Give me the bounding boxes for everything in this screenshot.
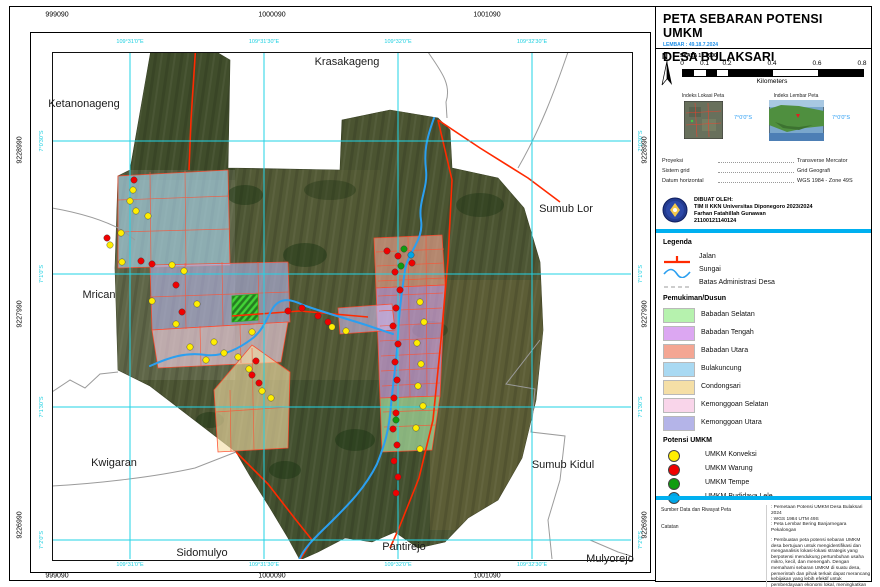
projection-leader: [718, 167, 794, 173]
dusun-color-swatch: [663, 326, 695, 341]
credits-author: Farhan Fatahillah Gunawan: [694, 211, 766, 217]
inset-location-map: [684, 101, 723, 139]
legend-dusun-row: Kemonggoan Utara: [663, 415, 863, 433]
map-inner-neatline: [52, 52, 633, 561]
scale-block: N SKALA 1 : 5000 00.10.20.40.60.8 Kilome…: [656, 49, 871, 89]
source-value: : Pemetaan Potensi UMKM Desa Bulaksari 2…: [771, 505, 871, 534]
projection-row: Sistem gridGrid Geografi: [662, 167, 865, 174]
scale-segment: [818, 70, 863, 76]
projection-row: ProyeksiTransverse Mercator: [662, 157, 865, 164]
scale-segment: [706, 70, 717, 76]
projection-leader: [718, 157, 794, 163]
inset-sheet-map: [769, 100, 824, 141]
umkm-dot-icon: [668, 450, 680, 462]
dusun-color-swatch: [663, 344, 695, 359]
scale-unit: Kilometers: [682, 78, 862, 85]
projection-leader: [718, 177, 794, 183]
dusun-color-swatch: [663, 308, 695, 323]
projection-label: Proyeksi: [662, 158, 718, 164]
dusun-label: Babadan Selatan: [701, 311, 755, 318]
footer-values: : Pemetaan Potensi UMKM Desa Bulaksari 2…: [766, 505, 871, 587]
umkm-dot-icon: [668, 478, 680, 490]
title-block: PETA SEBARAN POTENSI UMKM LEMBAR : 49.18…: [656, 7, 871, 49]
legend-umkm-row: UMKM Warung: [663, 463, 863, 477]
legend-heading: Legenda: [663, 239, 692, 246]
dusun-label: Condongsari: [701, 383, 741, 390]
projection-value: Grid Geografi: [797, 168, 865, 174]
projection-label: Datum horizontal: [662, 178, 718, 184]
dusun-color-swatch: [663, 380, 695, 395]
inset1-coordinate: 7°0'0"S: [734, 115, 752, 121]
notes-value: : Pembuatan peta potensi sebaran UMKM de…: [771, 538, 871, 587]
legend-line-symbols: JalanSungaiBatas Administrasi Desa: [663, 251, 863, 290]
scale-segment: [773, 70, 818, 76]
inset2-label: Indeks Lembar Peta: [774, 93, 819, 99]
dusun-color-swatch: [663, 362, 695, 377]
projection-label: Sistem grid: [662, 168, 718, 174]
scale-tick: 0.4: [767, 60, 776, 67]
scale-tick: 0: [680, 60, 684, 67]
north-arrow-icon: [661, 60, 673, 86]
legend-dusun-row: Babadan Selatan: [663, 307, 863, 325]
projection-value: Transverse Mercator: [797, 158, 865, 164]
projection-value: WGS 1984 - Zone 49S: [797, 178, 865, 184]
projection-row: Datum horizontalWGS 1984 - Zone 49S: [662, 177, 865, 184]
source-label: Sumber Data dan Riwayat Peta: [661, 507, 731, 513]
legend-dusun-row: Bulakuncung: [663, 361, 863, 379]
credits-team: TIM II KKN Universitas Diponegoro 2023/2…: [694, 204, 813, 210]
dusun-label: Kemonggoan Selatan: [701, 401, 768, 408]
scale-tick: 0.6: [812, 60, 821, 67]
legend-umkm-row: UMKM Tempe: [663, 477, 863, 491]
scale-segment: [683, 70, 694, 76]
sheet-number: LEMBAR : 49.18.7.2024: [663, 42, 864, 48]
legend-line-label: Batas Administrasi Desa: [699, 279, 775, 286]
umkm-dot-icon: [668, 464, 680, 476]
scale-segment: [717, 70, 728, 76]
legend-line-label: Jalan: [699, 253, 716, 260]
boundary-symbol-icon: [663, 278, 691, 296]
info-panel: PETA SEBARAN POTENSI UMKM LEMBAR : 49.18…: [655, 6, 872, 582]
inset2-coordinate: 7°0'0"S: [832, 115, 850, 121]
legend-line-label: Sungai: [699, 266, 721, 273]
legend-dusun-swatches: Babadan SelatanBabadan TengahBabadan Uta…: [663, 307, 863, 433]
legend-dusun-row: Condongsari: [663, 379, 863, 397]
dusun-label: Babadan Tengah: [701, 329, 754, 336]
dusun-label: Kemonggoan Utara: [701, 419, 762, 426]
scale-ticks: 00.10.20.40.60.8: [682, 60, 868, 68]
scale-segment: [694, 70, 705, 76]
legend-dusun-row: Kemonggoan Selatan: [663, 397, 863, 415]
scale-tick: 0.2: [722, 60, 731, 67]
footer-block: Sumber Data dan Riwayat Peta Catatan : P…: [656, 500, 871, 580]
map-layout-sheet: 109°31'0"E109°31'0"E109°31'30"E109°31'30…: [0, 0, 880, 587]
legend-dusun-row: Babadan Tengah: [663, 325, 863, 343]
dusun-label: Bulakuncung: [701, 365, 741, 372]
umkm-heading: Potensi UMKM: [663, 437, 712, 444]
credits-block: DIBUAT OLEH: TIM II KKN Universitas Dipo…: [656, 191, 871, 229]
inset1-label: Indeks Lokasi Peta: [682, 93, 724, 99]
university-logo: [662, 197, 688, 223]
dusun-color-swatch: [663, 416, 695, 431]
umkm-label: UMKM Tempe: [705, 479, 749, 486]
scale-text: SKALA 1 : 5000: [680, 53, 717, 59]
credits-id: 21100121140124: [694, 218, 736, 224]
umkm-label: UMKM Warung: [705, 465, 753, 472]
scale-tick: 0.8: [857, 60, 866, 67]
scale-bar: [682, 69, 864, 77]
legend-block: Legenda JalanSungaiBatas Administrasi De…: [656, 233, 871, 496]
inset-block: Indeks Lokasi Peta Indeks Lembar Peta 7°…: [656, 89, 871, 153]
legend-dusun-row: Babadan Utara: [663, 343, 863, 361]
legend-line-row: Jalan: [663, 251, 863, 264]
legend-line-row: Batas Administrasi Desa: [663, 277, 863, 290]
dusun-color-swatch: [663, 398, 695, 413]
dusun-label: Babadan Utara: [701, 347, 748, 354]
map-title: PETA SEBARAN POTENSI UMKM: [663, 12, 864, 40]
projection-block: ProyeksiTransverse MercatorSistem gridGr…: [656, 153, 871, 191]
credits-heading: DIBUAT OLEH:: [694, 197, 733, 203]
legend-line-row: Sungai: [663, 264, 863, 277]
legend-umkm-row: UMKM Konveksi: [663, 449, 863, 463]
scale-segment: [728, 70, 773, 76]
dusun-heading: Pemukiman/Dusun: [663, 295, 726, 302]
notes-label: Catatan: [661, 524, 679, 530]
umkm-label: UMKM Konveksi: [705, 451, 757, 458]
scale-tick: 0.1: [700, 60, 709, 67]
